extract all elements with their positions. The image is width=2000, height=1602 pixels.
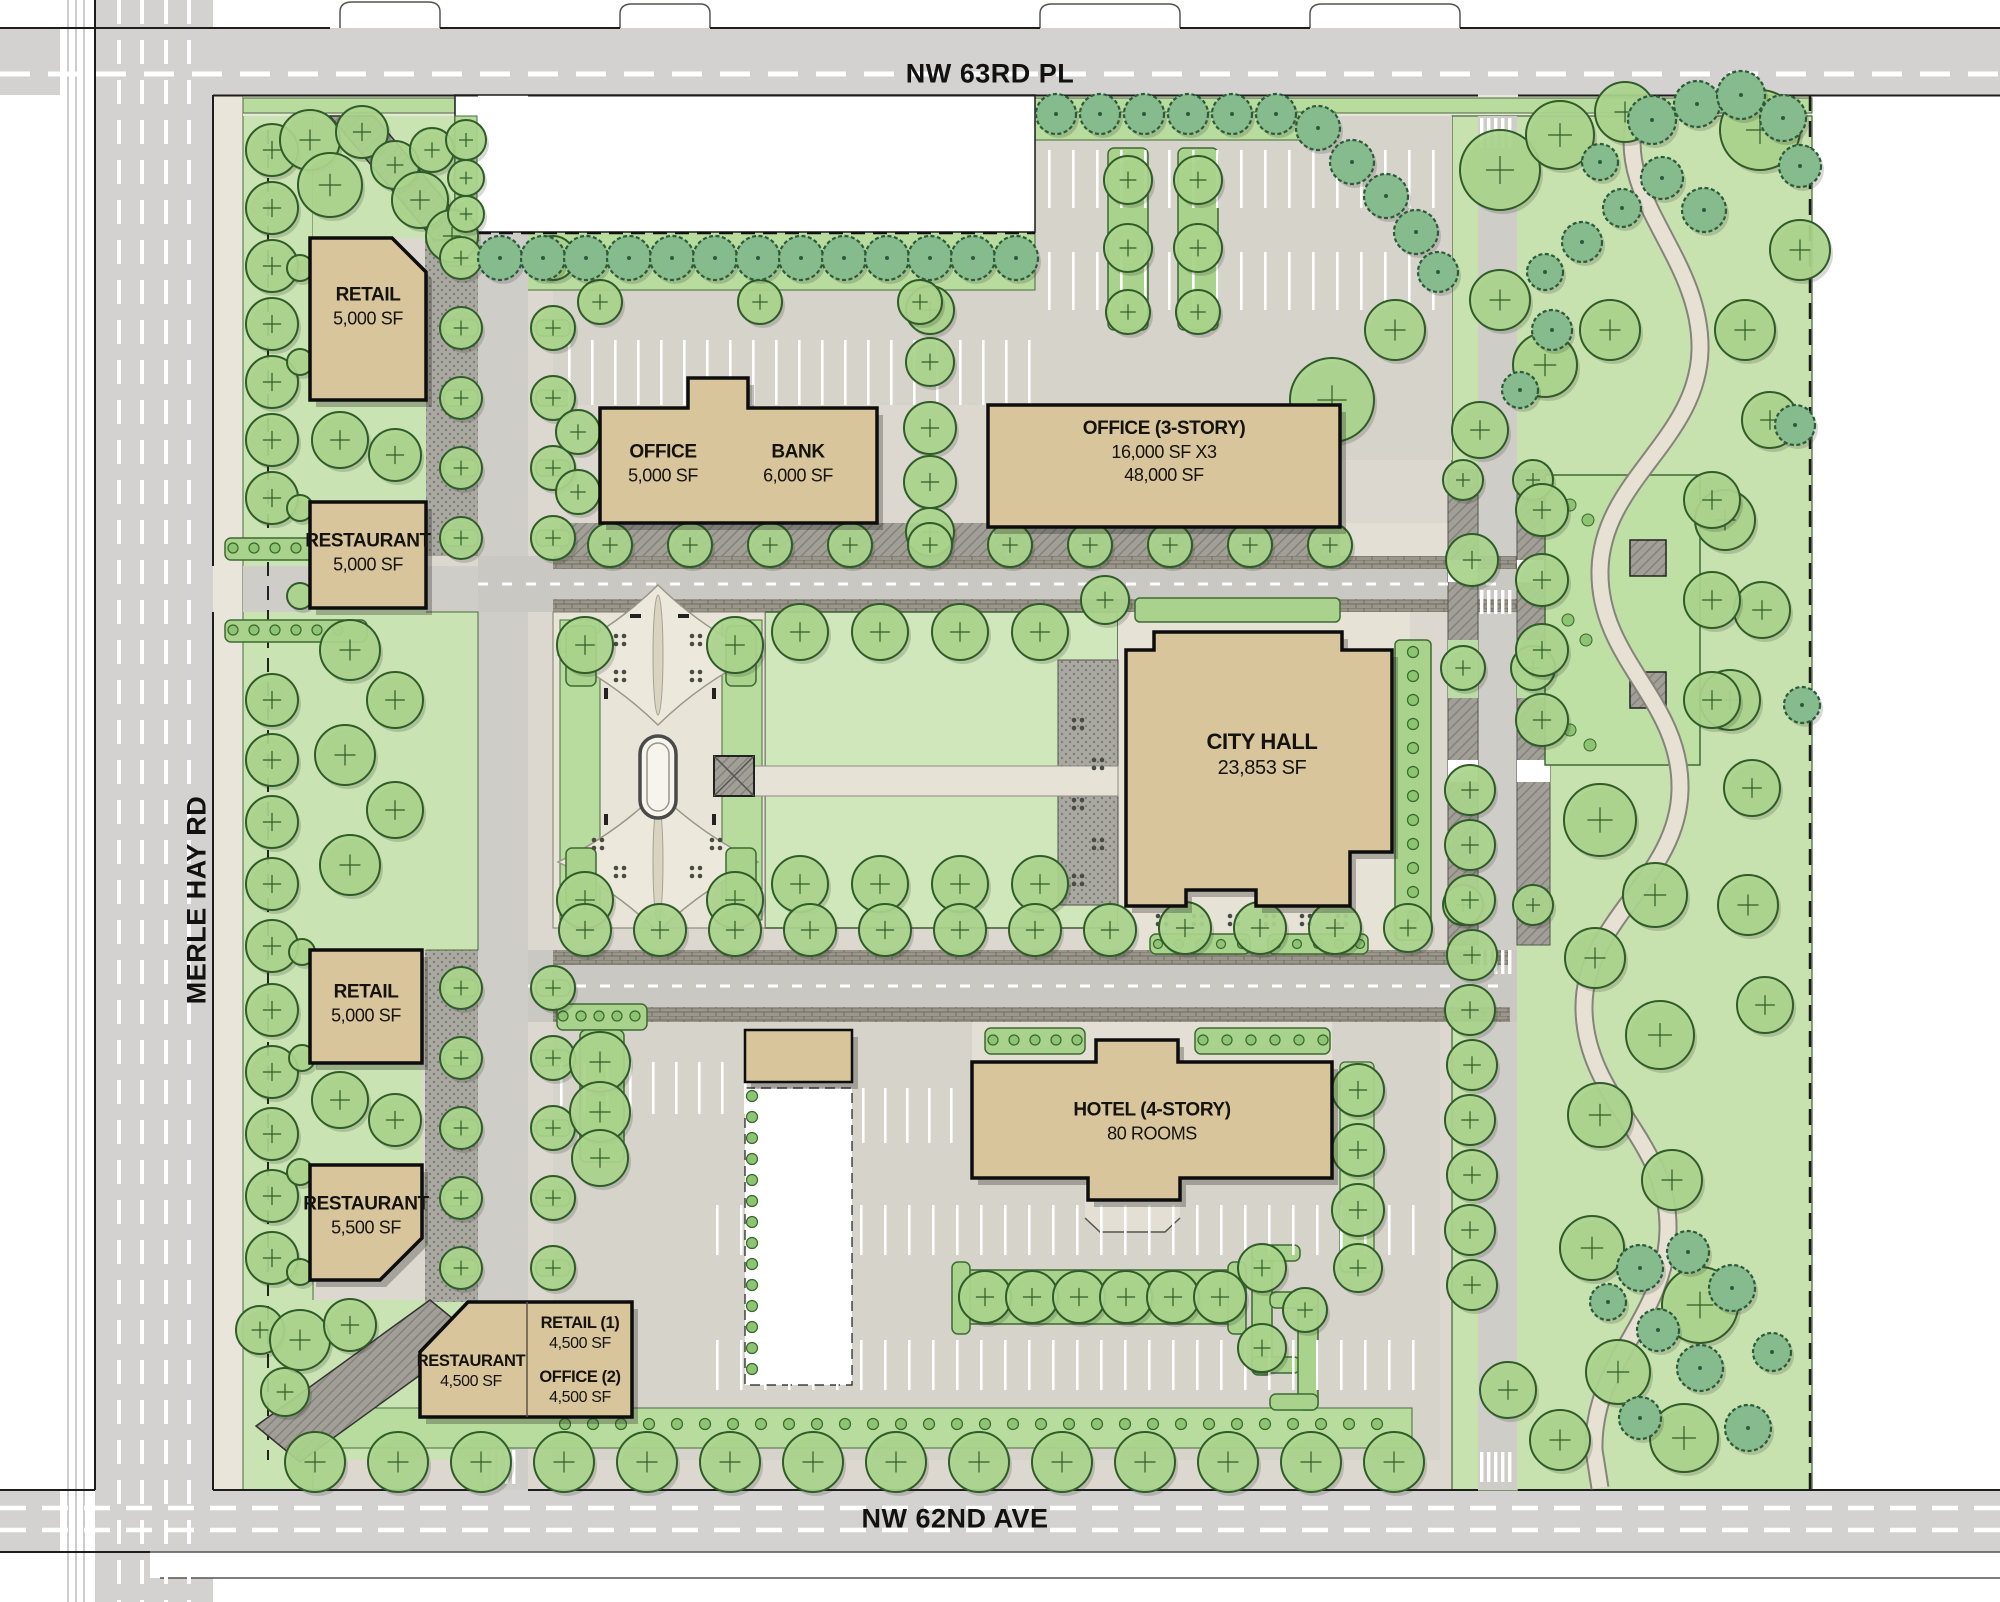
shrub-icon [747, 1322, 758, 1333]
shrub-icon [1064, 1419, 1075, 1430]
road-label-nw-62nd-ave: NW 62ND AVE [861, 1504, 1048, 1535]
building-label-city-hall: CITY HALL 23,853 SF [1207, 728, 1318, 782]
building-label-retail-w: RETAIL 5,000 SF [331, 980, 401, 1027]
shrub-icon [700, 1419, 711, 1430]
shrub-icon [980, 1419, 991, 1430]
shrub-icon [784, 1419, 795, 1430]
shrub-icon [747, 1343, 758, 1354]
shrub-icon [1408, 743, 1419, 754]
shrub-icon [1217, 940, 1226, 949]
shrub-icon [1408, 647, 1419, 658]
shrub-icon [312, 625, 322, 635]
shrub-icon [1120, 1419, 1131, 1430]
shrub-icon [896, 1419, 907, 1430]
shrub-icon [1408, 863, 1419, 874]
shrub-icon [1036, 1419, 1047, 1430]
street-internal-west [478, 116, 528, 1490]
shrub-icon [728, 1419, 739, 1430]
shrub-icon [1408, 839, 1419, 850]
shrub-icon [1294, 1035, 1304, 1045]
shrub-icon [644, 1419, 655, 1430]
road-label-nw-63rd-pl: NW 63RD PL [906, 59, 1075, 90]
shrub-icon [1408, 719, 1419, 730]
shrub-icon [952, 1419, 963, 1430]
building-label-retail-1: RETAIL (1) 4,500 SF [541, 1313, 620, 1355]
shrub-icon [747, 1301, 758, 1312]
shrub-icon [1246, 1035, 1256, 1045]
shrub-icon [747, 1217, 758, 1228]
future-pad-north [455, 95, 1035, 232]
shrub-icon [1198, 1035, 1208, 1045]
shrub-icon [1176, 1419, 1187, 1430]
building-label-restaurant-sw: RESTAURANT 4,500 SF [417, 1351, 525, 1393]
shrub-icon [1051, 1035, 1061, 1045]
shrub-icon [1344, 1419, 1355, 1430]
shrub-icon [1318, 1035, 1328, 1045]
shrub-icon [1030, 1035, 1040, 1045]
shrub-icon [1222, 1035, 1232, 1045]
shrub-icon [291, 543, 301, 553]
shrub-icon [270, 543, 280, 553]
shrub-icon [747, 1133, 758, 1144]
shrub-icon [747, 1112, 758, 1123]
shrub-icon [1232, 1419, 1243, 1430]
future-pad-south [745, 1088, 852, 1385]
building-small-pad [745, 1030, 852, 1082]
shrub-icon [1408, 767, 1419, 778]
shrub-icon [868, 1419, 879, 1430]
shrub-icon [612, 1011, 622, 1021]
shrub-icon [1009, 1035, 1019, 1045]
shrub-icon [747, 1259, 758, 1270]
shrub-icon [1408, 815, 1419, 826]
building-label-office: OFFICE 5,000 SF [628, 440, 698, 487]
shrub-icon [756, 1419, 767, 1430]
shrub-icon [747, 1091, 758, 1102]
shrub-icon [1293, 940, 1302, 949]
shrub-icon [747, 1175, 758, 1186]
shrub-icon [1288, 1419, 1299, 1430]
road-label-merle-hay-rd: MERLE HAY RD [182, 796, 213, 1005]
site-plan-drawing [0, 0, 2000, 1602]
shrub-icon [812, 1419, 823, 1430]
shrub-icon [1408, 791, 1419, 802]
shrub-icon [1092, 1419, 1103, 1430]
shrub-icon [672, 1419, 683, 1430]
shrub-icon [1008, 1419, 1019, 1430]
pergola-icon [1630, 540, 1666, 576]
shrub-icon [249, 543, 259, 553]
shrub-icon [988, 1035, 998, 1045]
shrub-icon [228, 543, 238, 553]
shrub-icon [249, 625, 259, 635]
shrub-icon [1072, 1035, 1082, 1045]
shrub-icon [228, 625, 238, 635]
shrub-icon [747, 1196, 758, 1207]
shrub-icon [1372, 1419, 1383, 1430]
shrub-icon [270, 625, 280, 635]
hedge-island [1270, 1394, 1318, 1410]
shrub-icon [594, 1011, 604, 1021]
building-label-hotel: HOTEL (4-STORY) 80 ROOMS [1073, 1098, 1230, 1145]
building-label-office-2: OFFICE (2) 4,500 SF [539, 1367, 620, 1409]
shrub-icon [747, 1364, 758, 1375]
shrub-icon [924, 1419, 935, 1430]
shrub-icon [840, 1419, 851, 1430]
hedge-island [1195, 1028, 1330, 1054]
shrub-icon [1408, 887, 1419, 898]
shrub-icon [1408, 695, 1419, 706]
shrub-icon [630, 1011, 640, 1021]
shrub-icon [576, 1011, 586, 1021]
building-label-office-3story: OFFICE (3-STORY) 16,000 SF X3 48,000 SF [1083, 417, 1246, 487]
shrub-icon [1316, 1419, 1327, 1430]
building-label-restaurant-w: RESTAURANT 5,500 SF [303, 1192, 428, 1239]
building-label-retail-nw: RETAIL 5,000 SF [333, 283, 403, 330]
building-label-restaurant-nw: RESTAURANT 5,000 SF [305, 529, 430, 576]
shrub-icon [1154, 940, 1163, 949]
shrub-icon [747, 1280, 758, 1291]
fountain-icon [640, 736, 676, 818]
site-plan: NW 63RD PL MERLE HAY RD NW 62ND AVE RETA… [0, 0, 2000, 1602]
shrub-icon [1260, 1419, 1271, 1430]
shrub-icon [1270, 1035, 1280, 1045]
shrub-icon [291, 625, 301, 635]
shrub-icon [747, 1238, 758, 1249]
shrub-icon [1204, 1419, 1215, 1430]
building-label-bank: BANK 6,000 SF [763, 440, 833, 487]
shrub-icon [747, 1154, 758, 1165]
shrub-icon [1148, 1419, 1159, 1430]
shrub-icon [1408, 671, 1419, 682]
